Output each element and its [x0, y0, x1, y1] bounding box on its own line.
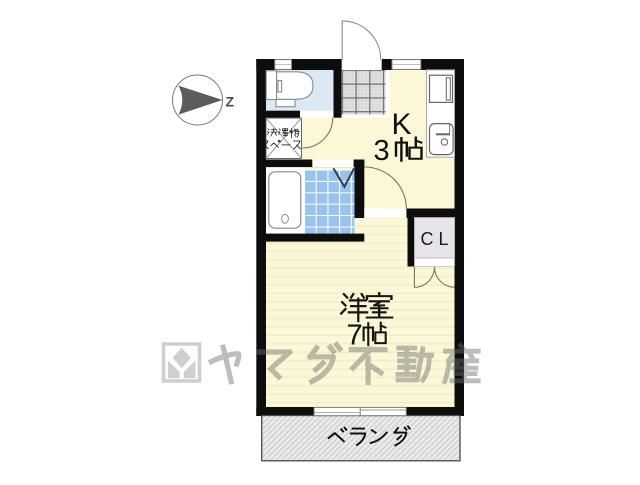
svg-text:7: 7 — [347, 320, 363, 352]
svg-text:K: K — [392, 108, 412, 141]
svg-text:Z: Z — [226, 94, 235, 110]
svg-text:3: 3 — [374, 135, 390, 167]
svg-text:CL: CL — [421, 229, 454, 249]
